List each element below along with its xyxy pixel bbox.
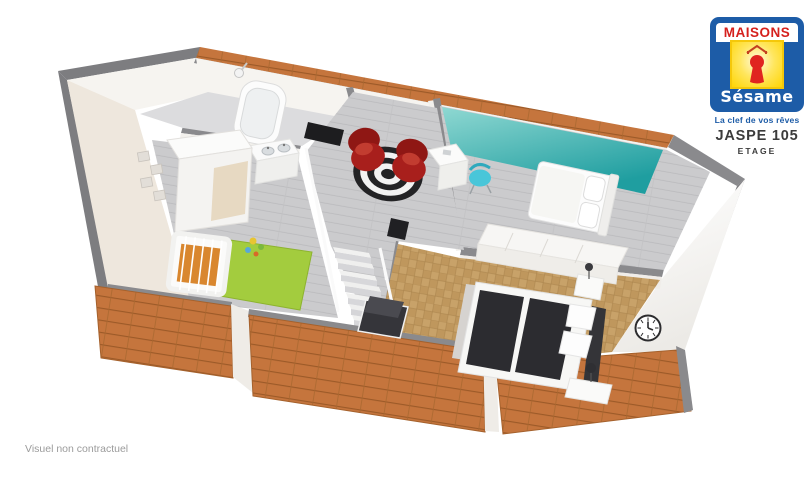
master-doorway xyxy=(387,218,409,240)
keyhole-icon xyxy=(732,42,782,87)
plan-title: JASPE 105 ETAGE xyxy=(700,129,811,156)
dark-armchair-icon xyxy=(358,296,408,338)
plan-model-name: JASPE 105 xyxy=(700,129,811,145)
logo-box: MAISONS Sésame xyxy=(710,17,804,112)
crib-icon xyxy=(168,233,230,295)
brand-name-bottom: Sésame xyxy=(720,87,793,107)
wall-clock-icon xyxy=(636,316,661,341)
brand-logo: MAISONS Sésame La clef de vos rêves xyxy=(708,17,806,125)
page: MAISONS Sésame La clef de vos rêves JASP… xyxy=(0,0,811,480)
disclaimer-text: Visuel non contractuel xyxy=(25,443,128,455)
logo-top-band: MAISONS xyxy=(716,23,798,42)
logo-yellow-square xyxy=(732,42,782,87)
plan-level-label: ETAGE xyxy=(700,146,811,156)
brand-tagline: La clef de vos rêves xyxy=(708,115,806,125)
floorplan-3d-render xyxy=(0,0,811,480)
wardrobe-icon xyxy=(167,130,252,232)
brand-name-top: MAISONS xyxy=(716,26,798,40)
